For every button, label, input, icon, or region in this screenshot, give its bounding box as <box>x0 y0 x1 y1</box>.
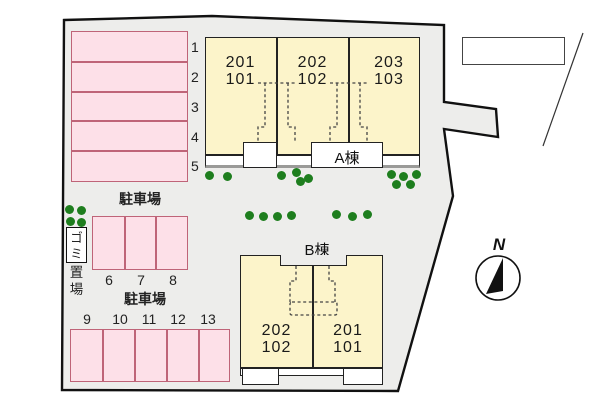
garbage-station-label: 置場 <box>66 265 87 298</box>
tree-icon <box>245 211 254 220</box>
tree-icon <box>304 174 313 183</box>
parking-lot-2 <box>92 216 188 270</box>
parking-space-divider <box>72 150 187 152</box>
tree-icon <box>77 206 86 215</box>
parking-space-divider <box>198 330 200 381</box>
building-a-name: A棟 <box>311 147 383 168</box>
parking-area-label-1: 駐車場 <box>90 189 190 209</box>
garbage-station-box: ゴミ <box>66 227 87 263</box>
building-a-walkway <box>276 155 313 168</box>
parking-space-number-13: 13 <box>195 311 221 327</box>
unit-label-b2: 201 101 <box>313 322 383 356</box>
parking-space-divider <box>72 91 187 93</box>
parking-space-number-10: 10 <box>107 311 133 327</box>
tree-icon <box>66 217 75 226</box>
tree-icon <box>77 218 86 227</box>
unit-b1-lower: 102 <box>241 339 312 356</box>
tree-icon <box>412 170 421 179</box>
building-a-walkway <box>382 155 420 168</box>
parking-space-number-12: 12 <box>165 311 191 327</box>
parking-space-divider <box>134 330 136 381</box>
building-b-entrance-porch <box>242 368 279 385</box>
unit-a3-upper: 203 <box>353 54 425 71</box>
compass-north-label: N <box>487 235 511 255</box>
tree-icon <box>399 172 408 181</box>
tree-icon <box>223 172 232 181</box>
parking-space-number-11: 11 <box>136 311 162 327</box>
tree-icon <box>65 205 74 214</box>
unit-a2-upper: 202 <box>277 54 348 71</box>
parking-space-number-8: 8 <box>163 272 183 288</box>
building-a-walkway <box>205 155 244 168</box>
building-b-entrance-notch <box>280 255 347 266</box>
unit-a1-lower: 101 <box>205 71 276 88</box>
parking-space-number-4: 4 <box>191 129 199 145</box>
unit-b1-upper: 202 <box>241 322 312 339</box>
parking-space-divider <box>166 330 168 381</box>
unit-label-a3: 203 103 <box>353 54 425 88</box>
site-plan: N 1 2 3 4 5 駐車場 6 7 8 駐車場 9 10 11 12 13 … <box>0 0 600 400</box>
unit-label-b1: 202 102 <box>241 322 312 356</box>
tree-icon <box>277 171 286 180</box>
parking-space-number-6: 6 <box>99 272 119 288</box>
parking-space-number-1: 1 <box>191 39 199 55</box>
unit-a2-lower: 102 <box>277 71 348 88</box>
tree-icon <box>363 210 372 219</box>
tree-icon <box>273 212 282 221</box>
tree-icon <box>287 211 296 220</box>
unit-b2-lower: 101 <box>313 339 383 356</box>
parking-lot-3 <box>70 329 230 382</box>
tree-icon <box>205 171 214 180</box>
tree-icon <box>332 210 341 219</box>
parking-space-number-9: 9 <box>74 311 100 327</box>
parking-space-number-5: 5 <box>191 158 199 174</box>
unit-a1-upper: 201 <box>205 54 276 71</box>
tree-icon <box>406 180 415 189</box>
tree-icon <box>392 180 401 189</box>
unit-label-a1: 201 101 <box>205 54 276 88</box>
parking-space-number-2: 2 <box>191 69 199 85</box>
tree-icon <box>348 212 357 221</box>
parking-space-divider <box>124 217 126 269</box>
building-a-entrance-porch <box>243 142 277 168</box>
parking-area-label-2: 駐車場 <box>95 289 195 309</box>
building-a-unit-divider <box>348 37 350 155</box>
parking-space-divider <box>102 330 104 381</box>
parking-space-divider <box>155 217 157 269</box>
unit-b2-upper: 201 <box>313 322 383 339</box>
neighbor-building-outline <box>462 37 565 65</box>
parking-space-divider <box>72 120 187 122</box>
tree-icon <box>387 170 396 179</box>
building-b-entrance-porch <box>343 368 383 385</box>
unit-a3-lower: 103 <box>353 71 425 88</box>
parking-space-divider <box>72 61 187 63</box>
parking-space-number-7: 7 <box>131 272 151 288</box>
parking-space-number-3: 3 <box>191 99 199 115</box>
parking-lot-1 <box>71 31 188 182</box>
tree-icon <box>292 168 301 177</box>
unit-label-a2: 202 102 <box>277 54 348 88</box>
tree-icon <box>259 212 268 221</box>
